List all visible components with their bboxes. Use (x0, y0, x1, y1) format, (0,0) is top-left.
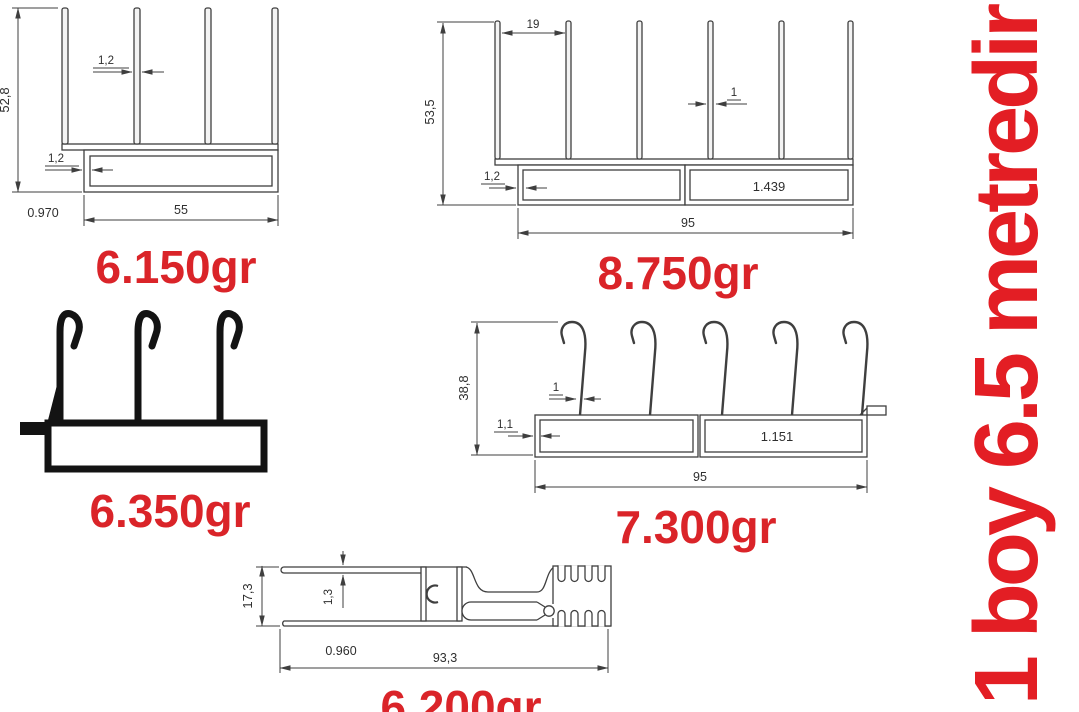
profile-e-bar-taper (537, 615, 545, 620)
profile-d-hook (843, 322, 867, 415)
profile-d-hook (773, 322, 797, 415)
profile-c-tab (20, 422, 46, 435)
profiles-drawing-canvas: 52,8 1,2 1,2 0.970 55 1.439 (0, 0, 1079, 712)
profile-e-drawing: 17,3 1,3 0.960 93,3 (240, 551, 611, 673)
dim-width-label: 93,3 (433, 651, 457, 665)
dim-hook-thickness-label: 1 (553, 382, 559, 394)
profile-b-fin (848, 21, 853, 159)
profile-e-top-flange (281, 567, 421, 573)
profile-e-weight-label: 6.200gr (371, 684, 551, 712)
dim-fin-thickness-label: 1 (731, 87, 737, 99)
profile-d-hook (561, 322, 585, 415)
profile-a-weight-label: 6.150gr (86, 244, 266, 290)
profile-e-comb-slot (571, 611, 578, 627)
profile-e-knob (544, 606, 554, 616)
profile-a-base-inner (90, 156, 272, 186)
profile-b-fin (566, 21, 571, 159)
profile-e-wall (457, 567, 462, 621)
profile-a-fin (205, 8, 211, 144)
profile-c-base (48, 423, 264, 469)
dim-fin-spacing-label: 19 (527, 19, 540, 31)
profile-d-hook (703, 322, 727, 415)
dim-width-label: 95 (693, 470, 707, 484)
profile-d-weight-label: 7.300gr (606, 504, 786, 550)
technical-drawing-sheet: 52,8 1,2 1,2 0.970 55 1.439 (0, 0, 1079, 712)
profile-c-hook (138, 314, 157, 426)
profile-e-comb-slot (598, 565, 605, 581)
dim-wall-thickness-label: 1,3 (323, 589, 335, 605)
profile-d-drawing: 1.151 38,8 1 1,1 95 (456, 322, 886, 493)
profile-e-comb-slot (585, 611, 592, 627)
profile-a-fin (272, 8, 278, 144)
dim-wall-thickness-label: 1,1 (497, 419, 513, 431)
profile-a-fin (62, 8, 68, 144)
dim-wall-thickness-label: 1,2 (484, 171, 500, 183)
dim-side-value-label: 0.960 (325, 644, 356, 658)
dim-height-label: 52,8 (0, 87, 12, 112)
profile-d-tab (867, 406, 886, 415)
dim-wall-thickness-label: 1,2 (48, 153, 64, 165)
profile-b-weight-label: 8.750gr (588, 250, 768, 296)
profile-e-bar-taper (537, 602, 545, 607)
dim-height-label: 53,5 (422, 99, 437, 124)
profile-a-fin (134, 8, 140, 144)
profile-b-fin (779, 21, 784, 159)
profile-b-box-value: 1.439 (753, 179, 786, 194)
dim-width-label: 55 (174, 203, 188, 217)
profile-e-comb-slot (585, 565, 592, 581)
profile-d-box-value: 1.151 (761, 429, 794, 444)
profile-a-web (62, 144, 278, 150)
profile-b-base-left-inner (523, 170, 680, 200)
profile-e-wall (421, 567, 426, 621)
profile-c-hook (60, 314, 79, 426)
profile-b-drawing: 1.439 53,5 19 1 1,2 95 (422, 19, 853, 239)
profile-e-comb-slot (558, 565, 565, 581)
profile-d-base-left-inner (540, 420, 693, 452)
profile-c-hook (220, 314, 239, 426)
profile-b-web (495, 159, 853, 165)
profile-e-comb-slot (571, 565, 578, 581)
profile-b-fin (495, 21, 500, 159)
profile-a-drawing: 52,8 1,2 1,2 0.970 55 (0, 8, 278, 226)
profile-c-weight-label: 6.350gr (80, 488, 260, 534)
dim-width-label: 95 (681, 216, 695, 230)
profile-e-comb-slot (558, 611, 565, 627)
dim-height-label: 38,8 (456, 375, 471, 400)
profile-e-dip (466, 567, 554, 592)
dim-side-value-label: 0.970 (27, 206, 58, 220)
profile-b-fin (637, 21, 642, 159)
dim-fin-thickness-label: 1,2 (98, 55, 114, 67)
profile-c-drawing (20, 314, 264, 469)
profile-b-fin (708, 21, 713, 159)
profile-e-screw-boss (427, 586, 438, 603)
dim-height-label: 17,3 (240, 583, 255, 608)
profile-d-hook (631, 322, 655, 415)
length-note: 1 boy 6.5 metredir (962, 7, 1052, 705)
profile-e-comb-slot (598, 611, 605, 627)
profile-e-bar (462, 602, 537, 620)
